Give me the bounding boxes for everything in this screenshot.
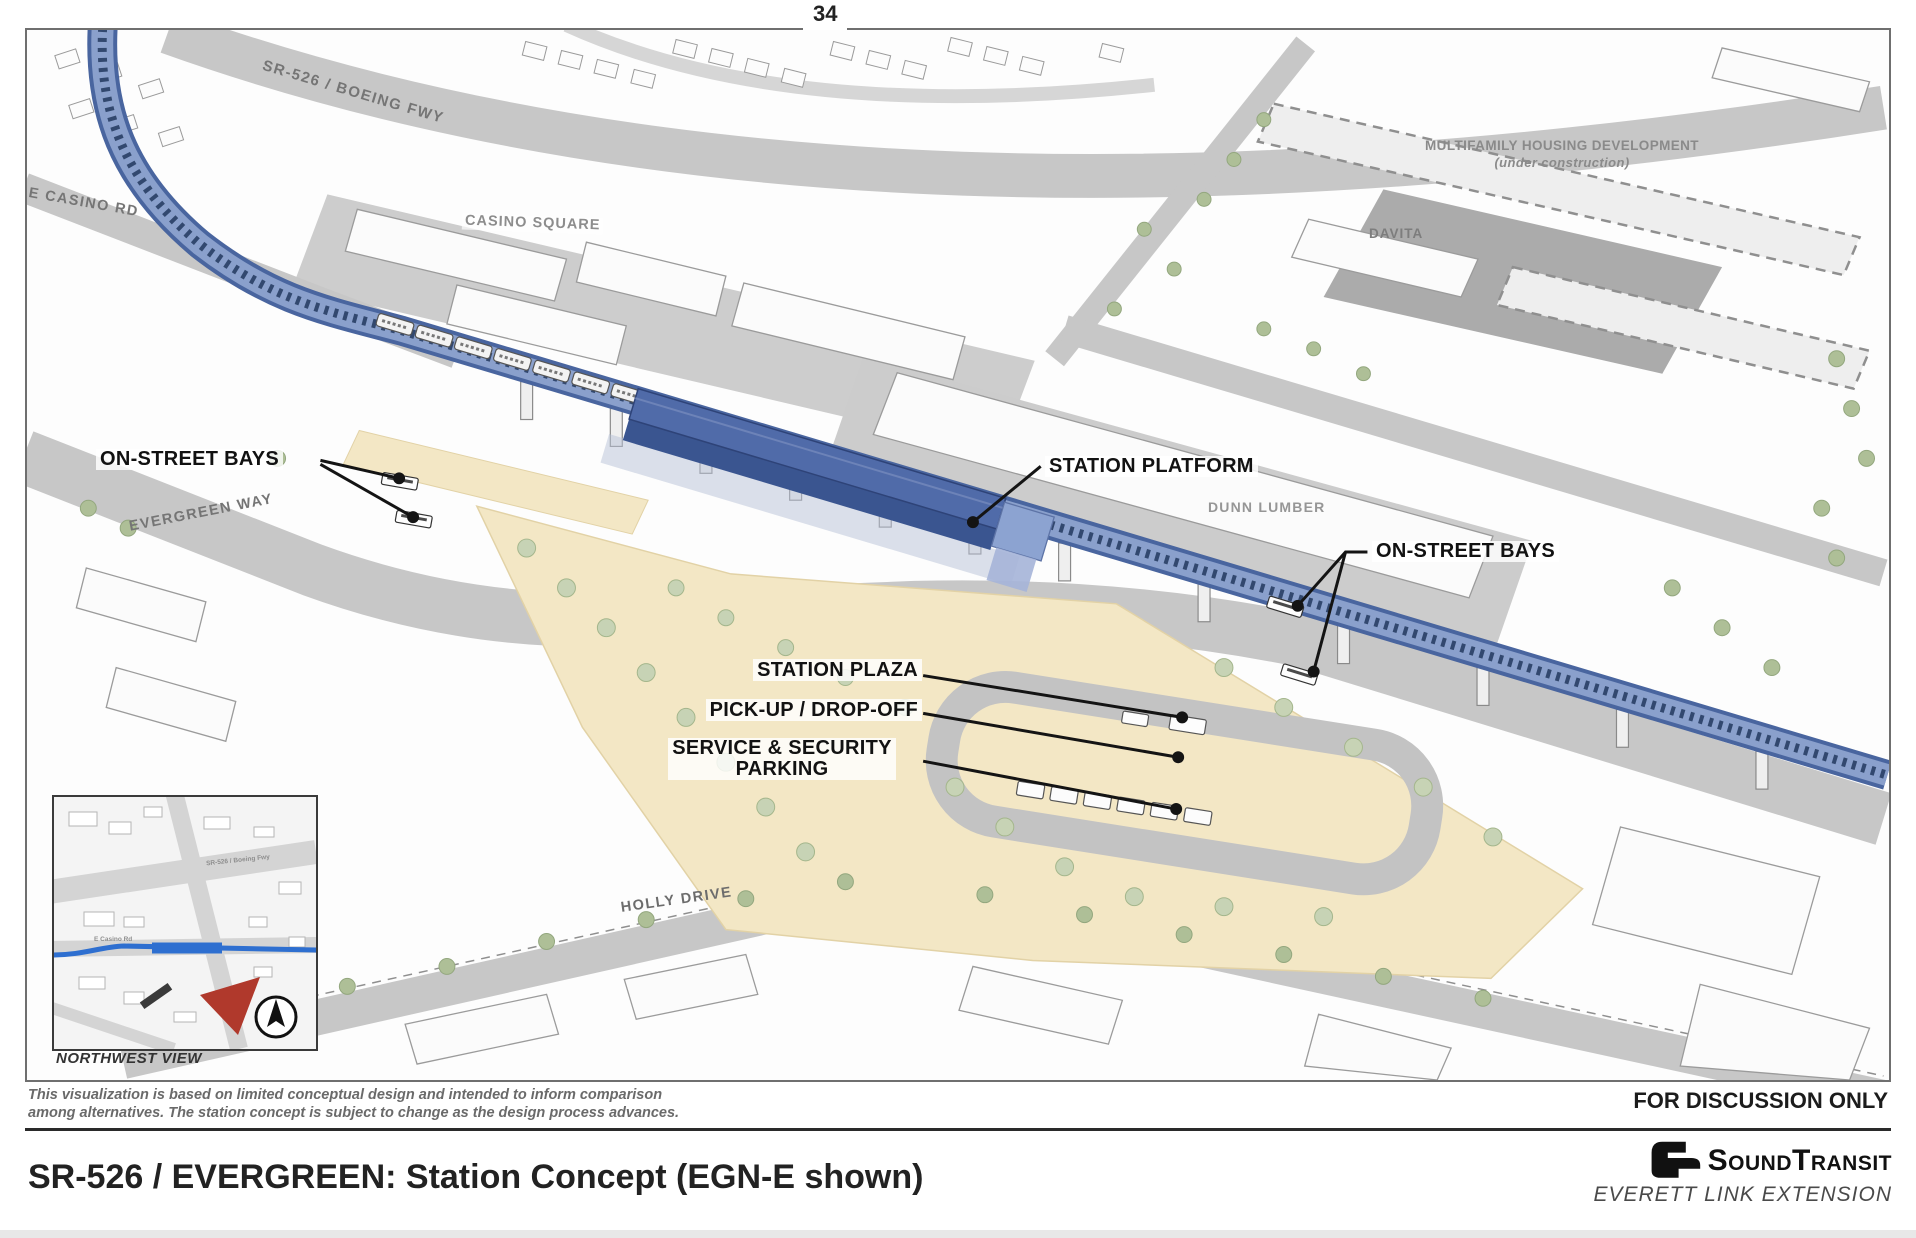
bottom-strip	[0, 1230, 1916, 1238]
callout-station-platform: STATION PLATFORM	[1045, 456, 1258, 477]
callout-service-security-line2: PARKING	[672, 759, 892, 780]
callout-on-street-bays-left: ON-STREET BAYS	[96, 449, 283, 470]
disclaimer-line2: among alternatives. The station concept …	[28, 1104, 679, 1122]
slide-title: SR-526 / EVERGREEN: Station Concept (EGN…	[28, 1158, 923, 1197]
place-label-davita: DAVITA	[1366, 227, 1426, 242]
compass-icon	[256, 997, 296, 1037]
footer-divider	[25, 1128, 1891, 1131]
callout-on-street-bays-right: ON-STREET BAYS	[1372, 541, 1559, 562]
place-label-dunn-lumber: DUNN LUMBER	[1205, 500, 1328, 515]
inset-locator-map: SR-526 / Boeing Fwy E Casino Rd	[52, 795, 318, 1051]
logo-subtitle: EVERETT LINK EXTENSION	[1593, 1183, 1892, 1207]
inset-map-graphic	[54, 797, 316, 1049]
multifamily-line2: (under construction)	[1402, 155, 1722, 171]
sound-transit-logo: SoundTransit EVERETT LINK EXTENSION	[1593, 1136, 1892, 1207]
multifamily-line1: MULTIFAMILY HOUSING DEVELOPMENT	[1402, 138, 1722, 155]
inset-label-e-casino: E Casino Rd	[94, 936, 132, 943]
disclaimer-line1: This visualization is based on limited c…	[28, 1086, 679, 1104]
disclaimer: This visualization is based on limited c…	[28, 1086, 679, 1122]
callout-station-plaza: STATION PLAZA	[753, 659, 922, 681]
for-discussion-only-note: FOR DISCUSSION ONLY	[1633, 1088, 1888, 1114]
callout-service-security-line1: SERVICE & SECURITY	[672, 738, 892, 759]
slide: 34	[0, 0, 1916, 1238]
inset-caption: NORTHWEST VIEW	[56, 1050, 202, 1067]
page-number: 34	[803, 0, 847, 30]
place-label-multifamily: MULTIFAMILY HOUSING DEVELOPMENT (under c…	[1402, 138, 1722, 171]
callout-pick-up-drop-off: PICK-UP / DROP-OFF	[706, 699, 922, 721]
logo-wordmark: SoundTransit	[1708, 1144, 1892, 1178]
sound-transit-logo-icon	[1648, 1136, 1702, 1185]
